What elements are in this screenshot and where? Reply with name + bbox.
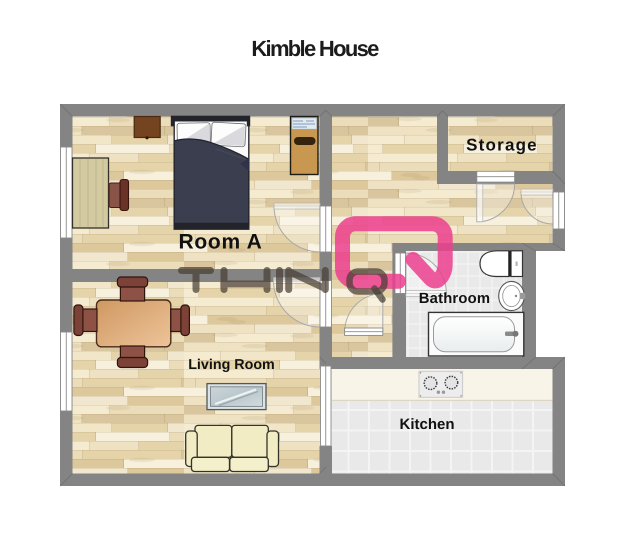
svg-text:Kitchen: Kitchen xyxy=(399,416,454,433)
svg-text:Storage: Storage xyxy=(466,136,538,155)
svg-text:Room A: Room A xyxy=(179,231,263,254)
svg-text:Bathroom: Bathroom xyxy=(419,291,490,307)
svg-text:Living Room: Living Room xyxy=(188,357,275,373)
